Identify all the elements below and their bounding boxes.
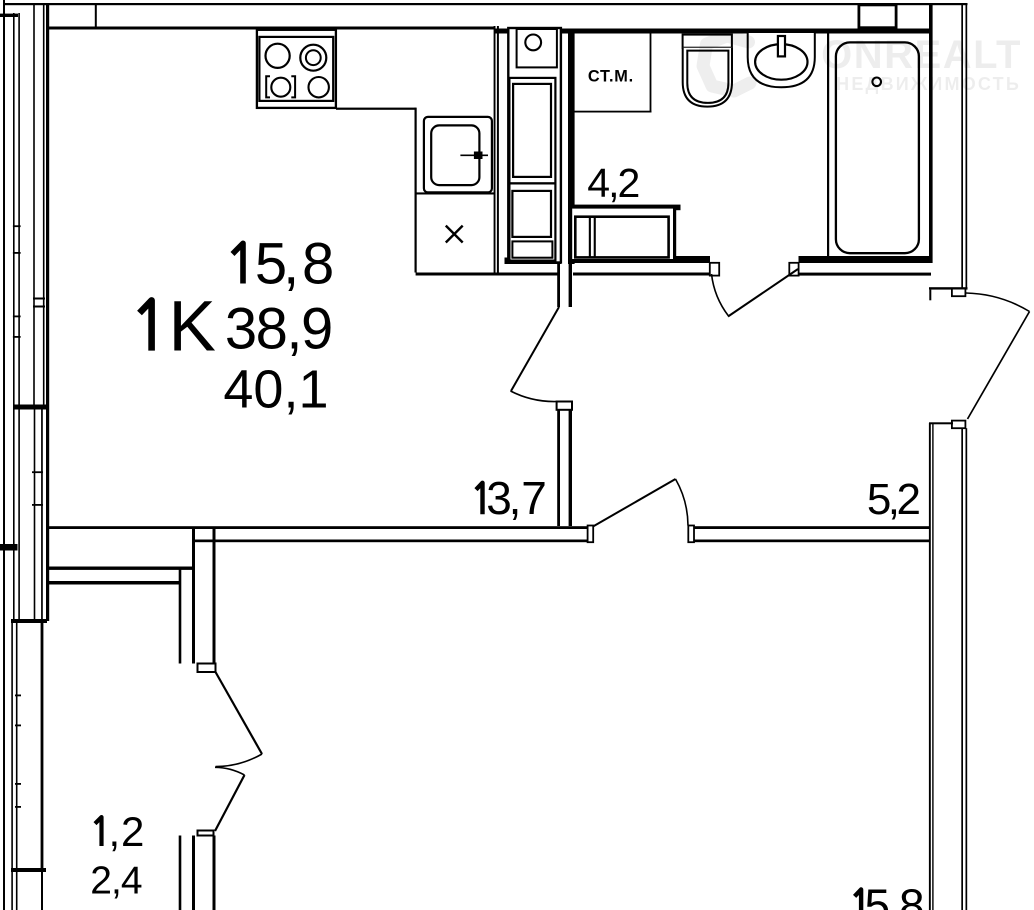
svg-text:5,2: 5,2 (867, 475, 920, 524)
svg-text:40,1: 40,1 (223, 360, 328, 420)
svg-text:ONREALT: ONREALT (821, 33, 1022, 77)
svg-text:,2: ,2 (109, 808, 145, 855)
svg-text:38,9: 38,9 (225, 297, 332, 362)
svg-text:5,8: 5,8 (865, 880, 925, 910)
svg-text:4,2: 4,2 (587, 160, 638, 206)
svg-text:3,7: 3,7 (486, 472, 547, 524)
svg-text:5,8: 5,8 (255, 232, 334, 297)
svg-text:СТ.М.: СТ.М. (588, 67, 634, 85)
svg-text:2,4: 2,4 (90, 860, 142, 903)
svg-text:НЕДВИЖИМОСТЬ: НЕДВИЖИМОСТЬ (836, 74, 1021, 94)
svg-text:K: K (169, 288, 216, 367)
